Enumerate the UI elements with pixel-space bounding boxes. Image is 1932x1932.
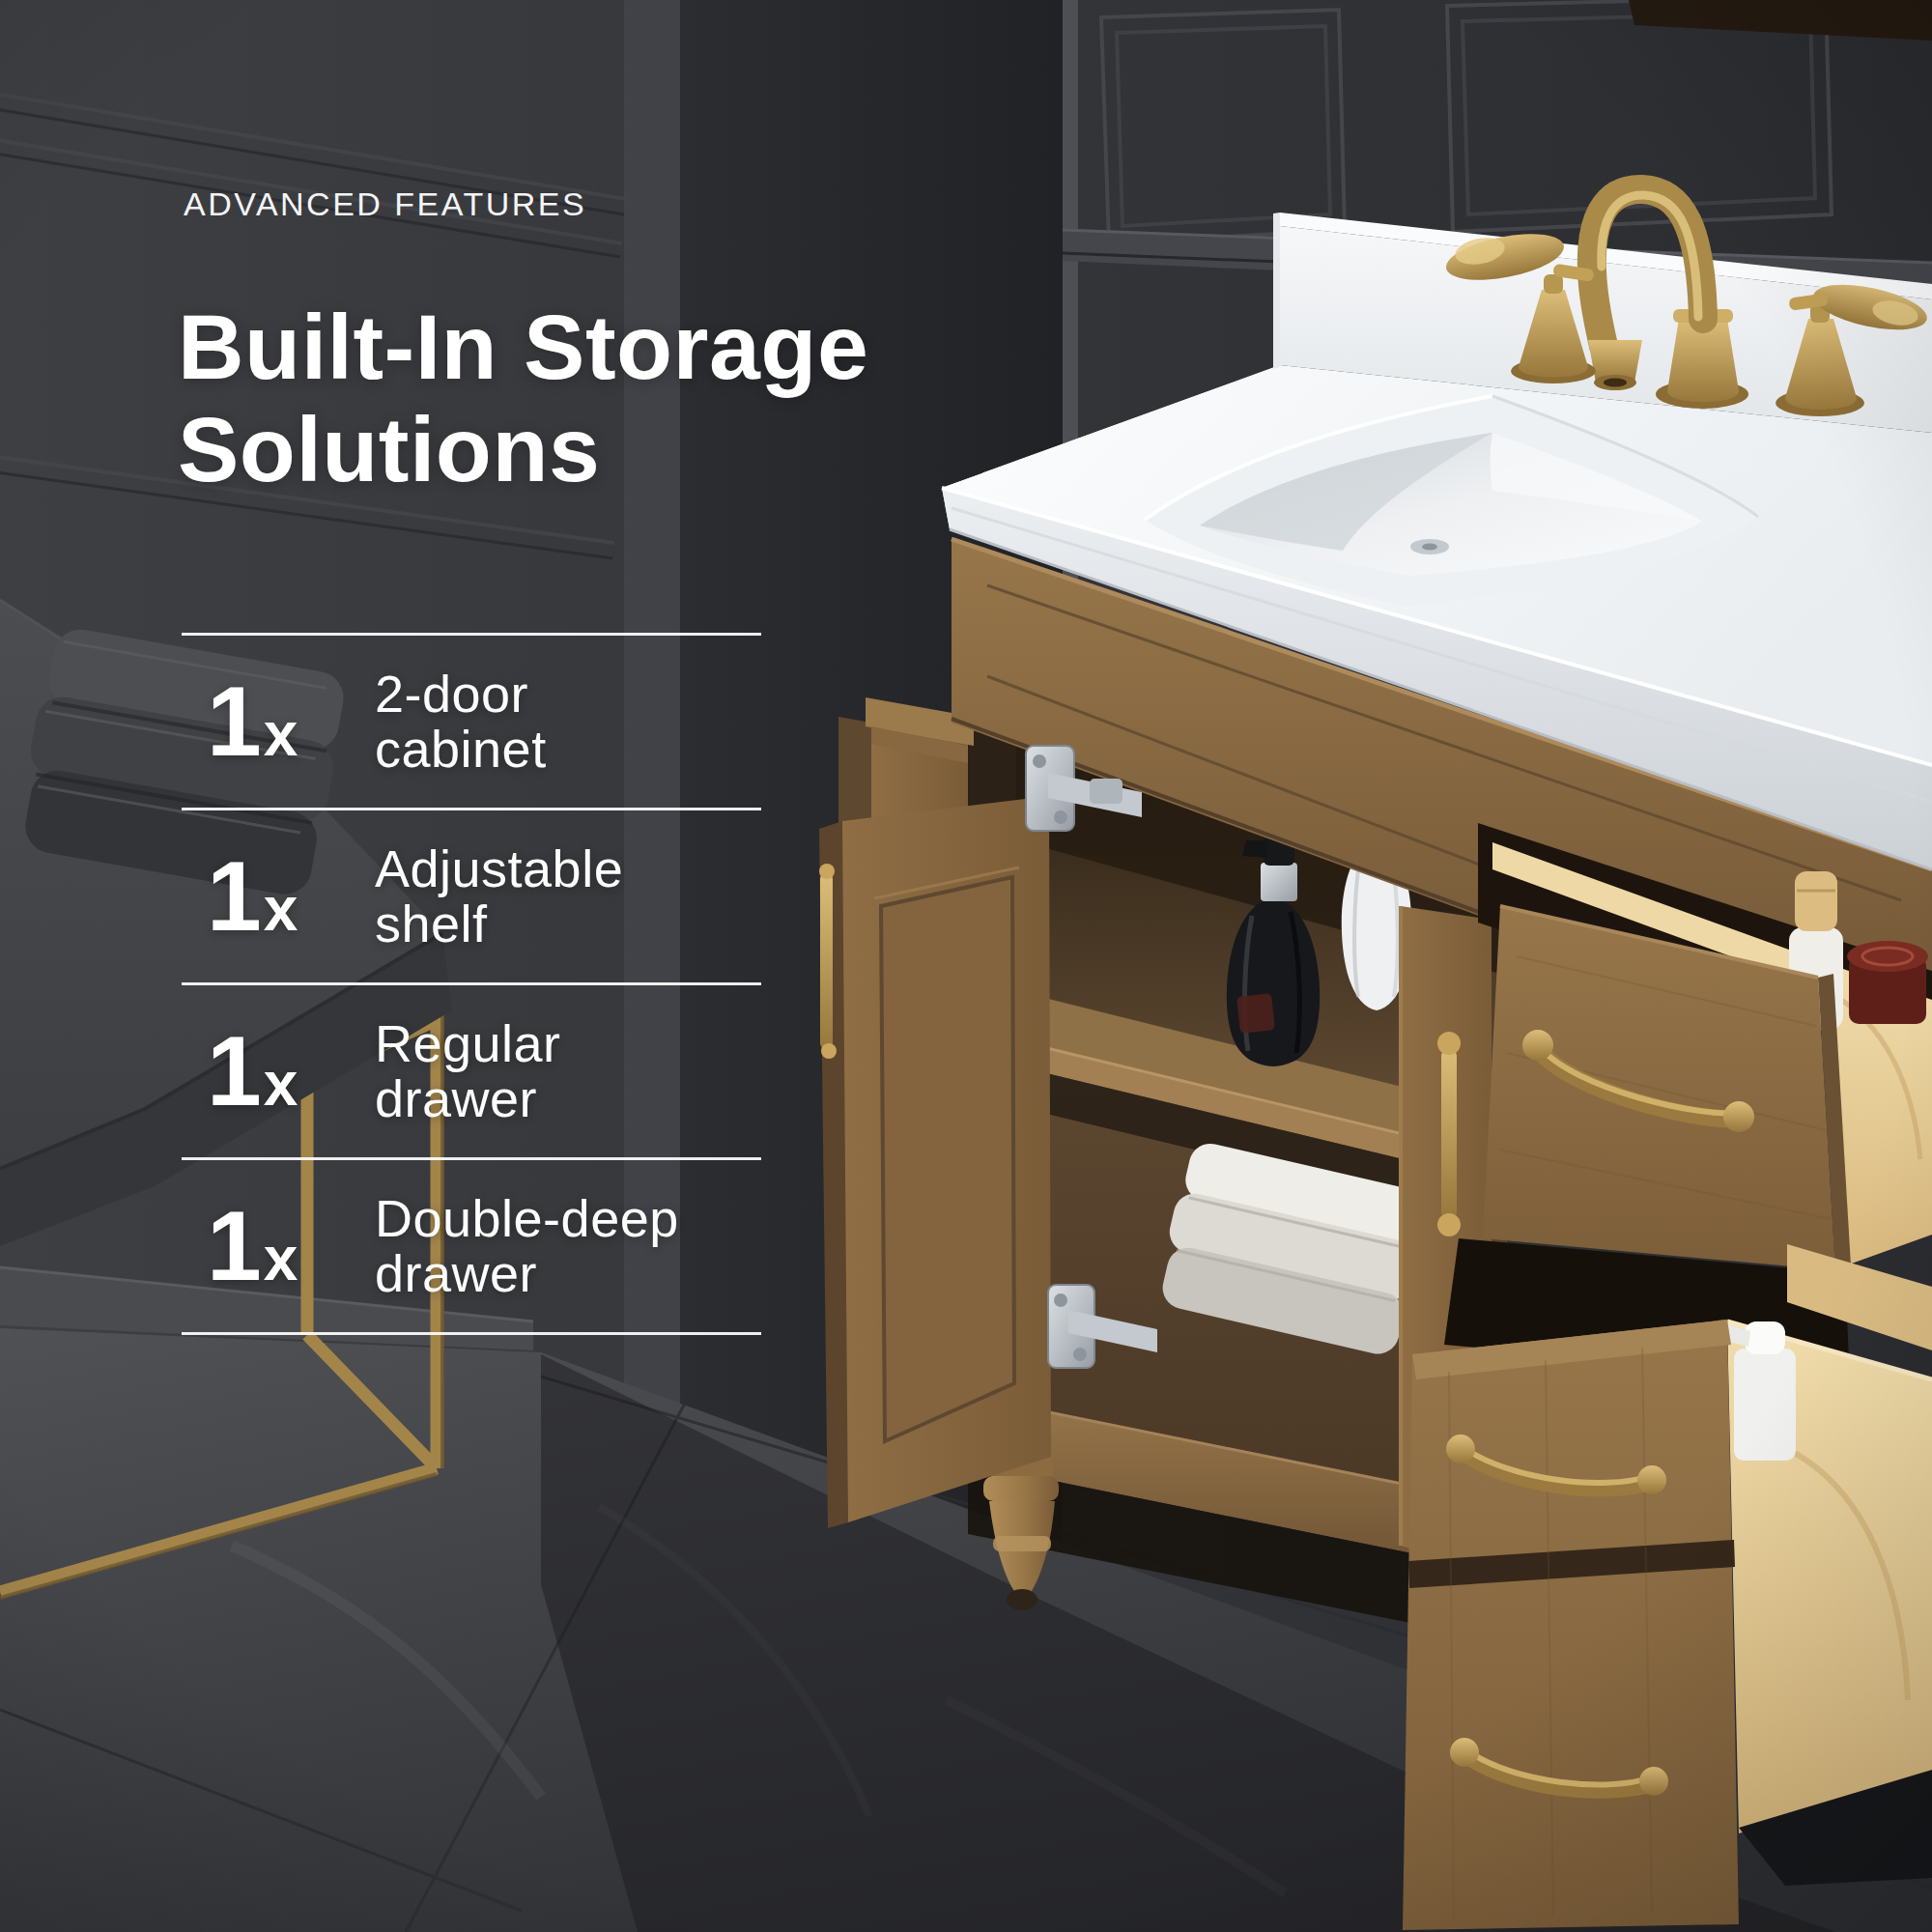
feature-quantity: 1 x [182, 672, 375, 771]
feature-row-adjustable-shelf: 1 x Adjustable shelf [182, 808, 761, 982]
page-title: Built-In Storage Solutions [178, 296, 868, 501]
feature-label: Double-deep drawer [375, 1191, 679, 1300]
feature-label: 2-door cabinet [375, 667, 547, 776]
feature-list: 1 x 2-door cabinet 1 x Adjustable shelf [182, 633, 761, 1335]
title-line-2: Solutions [178, 398, 600, 500]
feature-quantity: 1 x [182, 847, 375, 946]
feature-row-2-door-cabinet: 1 x 2-door cabinet [182, 633, 761, 808]
feature-quantity: 1 x [182, 1197, 375, 1295]
feature-label: Adjustable shelf [375, 841, 623, 951]
feature-list-end-divider [182, 1332, 761, 1335]
feature-label: Regular drawer [375, 1016, 561, 1125]
title-line-1: Built-In Storage [178, 296, 868, 398]
text-overlay: ADVANCED FEATURES Built-In Storage Solut… [0, 0, 1932, 1932]
eyebrow-label: ADVANCED FEATURES [184, 185, 586, 223]
feature-row-regular-drawer: 1 x Regular drawer [182, 982, 761, 1157]
feature-quantity: 1 x [182, 1022, 375, 1121]
product-feature-infographic: ADVANCED FEATURES Built-In Storage Solut… [0, 0, 1932, 1932]
feature-row-double-deep-drawer: 1 x Double-deep drawer [182, 1157, 761, 1332]
